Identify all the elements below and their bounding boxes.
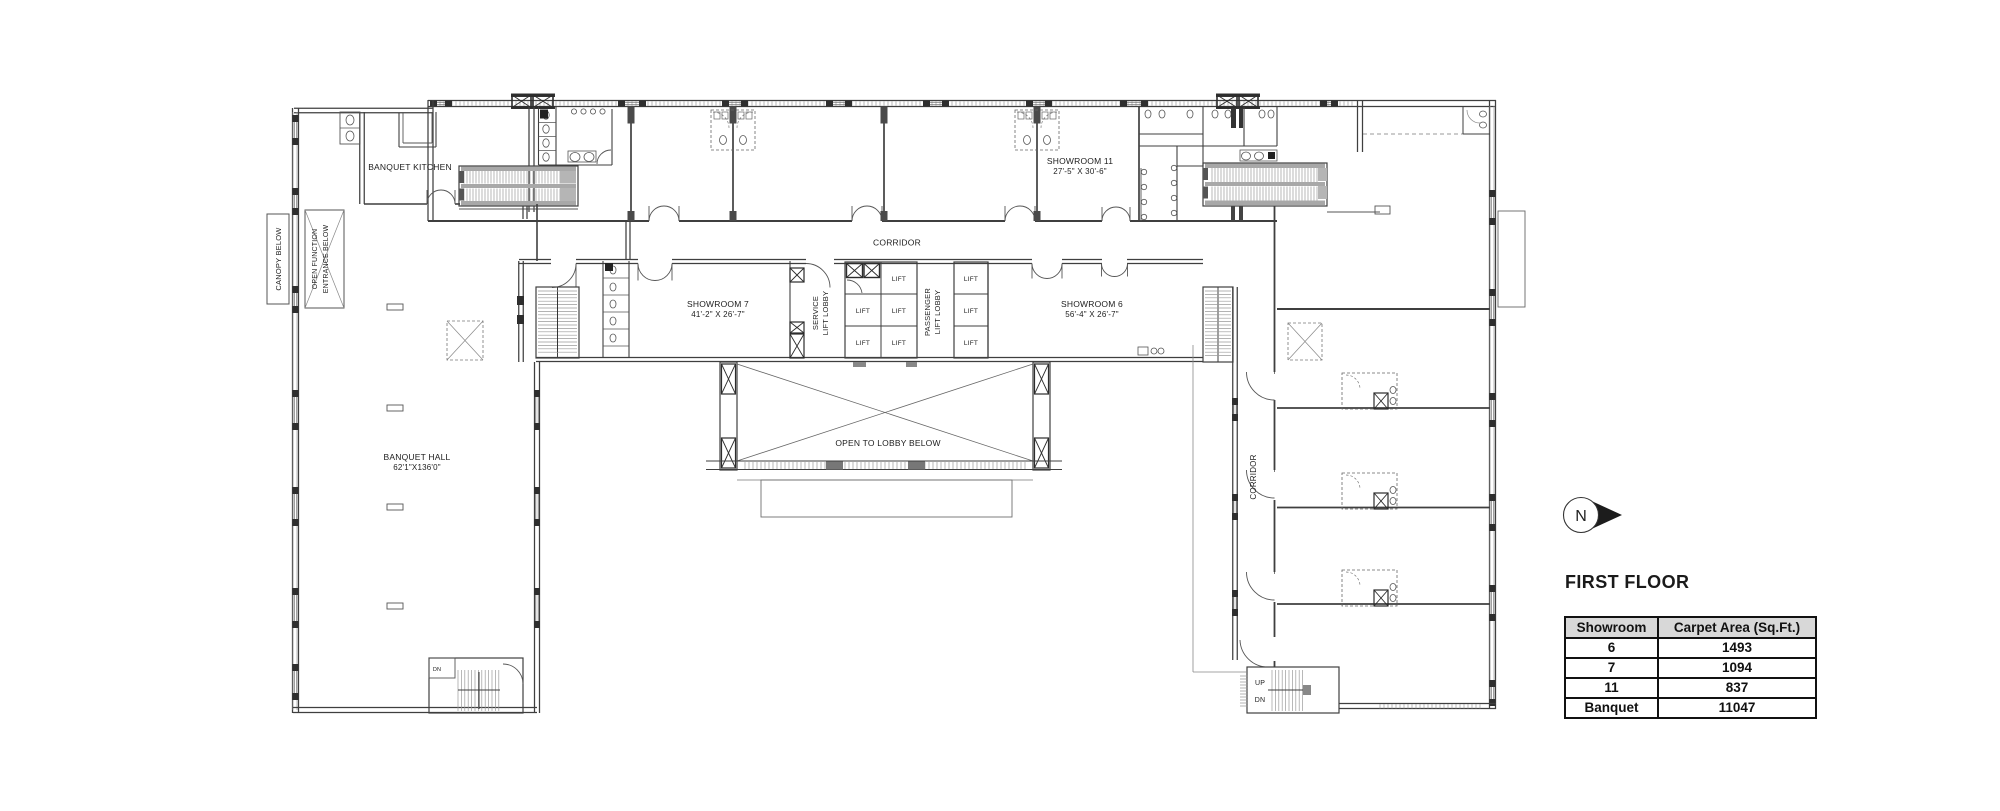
svg-text:LIFT: LIFT	[964, 276, 978, 283]
svg-text:56'-4" X 26'-7": 56'-4" X 26'-7"	[1065, 310, 1119, 319]
svg-text:ENTRANCE BELOW: ENTRANCE BELOW	[323, 225, 330, 294]
svg-text:UP: UP	[1255, 680, 1265, 687]
svg-text:DN: DN	[1255, 697, 1266, 704]
svg-text:LIFT: LIFT	[892, 340, 906, 347]
svg-text:BANQUET HALL: BANQUET HALL	[384, 452, 451, 462]
svg-text:CORRIDOR: CORRIDOR	[1249, 454, 1258, 499]
svg-text:CORRIDOR: CORRIDOR	[873, 238, 921, 248]
svg-text:LIFT: LIFT	[892, 308, 906, 315]
svg-text:SHOWROOM 11: SHOWROOM 11	[1047, 156, 1113, 166]
svg-text:SHOWROOM 7: SHOWROOM 7	[687, 299, 749, 309]
svg-text:OPEN TO LOBBY BELOW: OPEN TO LOBBY BELOW	[835, 438, 940, 448]
svg-text:27'-5" X 30'-6": 27'-5" X 30'-6"	[1053, 167, 1107, 176]
svg-text:LIFT: LIFT	[964, 308, 978, 315]
svg-text:OPEN FUNCTION: OPEN FUNCTION	[312, 229, 319, 290]
svg-text:LIFT: LIFT	[892, 276, 906, 283]
svg-text:LIFT: LIFT	[856, 340, 870, 347]
svg-text:LIFT LOBBY: LIFT LOBBY	[933, 290, 942, 334]
svg-text:N: N	[1575, 508, 1587, 525]
svg-text:41'-2" X 26'-7": 41'-2" X 26'-7"	[691, 310, 745, 319]
svg-text:SERVICE: SERVICE	[811, 296, 820, 330]
svg-text:DN: DN	[433, 667, 441, 673]
svg-text:LIFT LOBBY: LIFT LOBBY	[821, 291, 830, 335]
svg-text:62'1"X136'0": 62'1"X136'0"	[393, 463, 441, 472]
svg-text:SHOWROOM 6: SHOWROOM 6	[1061, 299, 1123, 309]
svg-text:PASSENGER: PASSENGER	[923, 288, 932, 336]
svg-text:BANQUET KITCHEN: BANQUET KITCHEN	[368, 162, 452, 172]
svg-text:LIFT: LIFT	[856, 308, 870, 315]
svg-text:LIFT: LIFT	[964, 340, 978, 347]
svg-text:CANOPY BELOW: CANOPY BELOW	[274, 227, 283, 291]
